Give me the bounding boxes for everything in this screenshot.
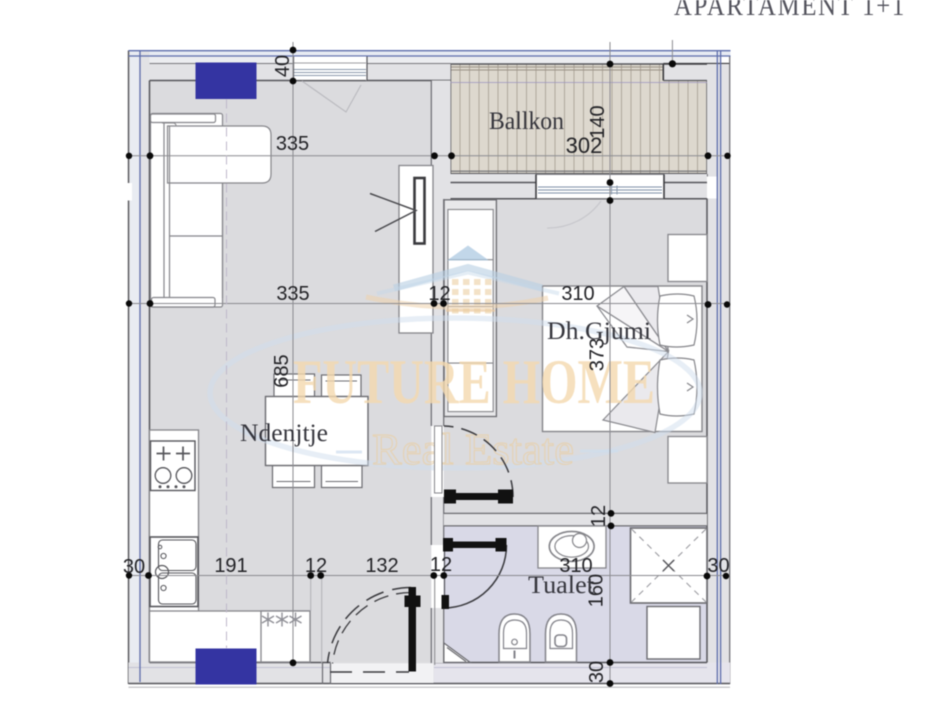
svg-text:685: 685	[271, 354, 293, 387]
svg-text:Ndenjtje: Ndenjtje	[240, 420, 328, 447]
svg-text:40: 40	[272, 55, 294, 77]
svg-text:Ballkon: Ballkon	[489, 108, 564, 135]
svg-text:132: 132	[365, 555, 398, 577]
svg-text:12: 12	[428, 283, 450, 305]
svg-text:Dh.Gjumi: Dh.Gjumi	[547, 318, 651, 345]
svg-text:335: 335	[276, 283, 309, 305]
svg-text:191: 191	[214, 555, 247, 577]
svg-text:30: 30	[707, 555, 729, 577]
svg-text:12: 12	[430, 554, 452, 576]
svg-text:30: 30	[123, 556, 145, 578]
svg-text:30: 30	[586, 661, 608, 683]
svg-text:12: 12	[305, 555, 327, 577]
svg-text:140: 140	[587, 105, 609, 138]
svg-text:Tualet: Tualet	[528, 572, 594, 599]
svg-text:310: 310	[561, 283, 594, 305]
svg-text:12: 12	[588, 505, 610, 527]
svg-text:APARTAMENT 1+1: APARTAMENT 1+1	[674, 0, 906, 22]
svg-text:335: 335	[276, 133, 309, 155]
